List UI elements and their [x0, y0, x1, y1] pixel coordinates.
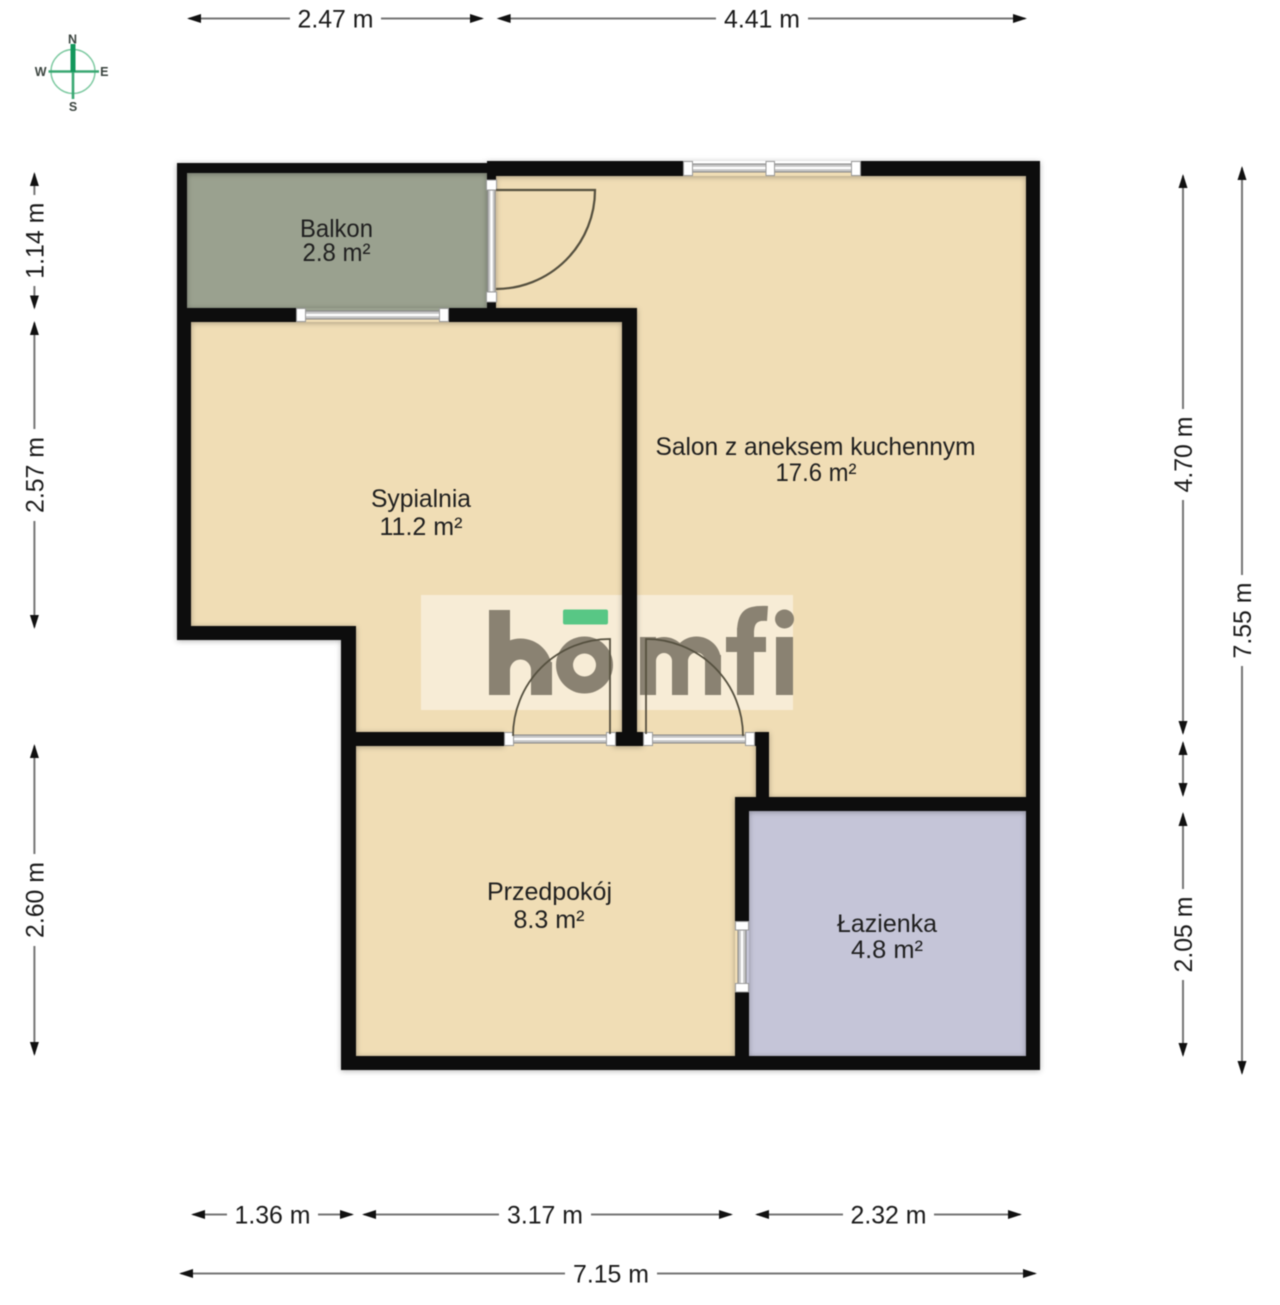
svg-text:3.17 m: 3.17 m — [507, 1202, 583, 1230]
svg-text:1.14 m: 1.14 m — [21, 203, 49, 279]
svg-text:7.55 m: 7.55 m — [1229, 583, 1257, 659]
svg-text:2.57 m: 2.57 m — [21, 437, 49, 513]
svg-text:2.47 m: 2.47 m — [298, 6, 374, 34]
svg-text:2.32 m: 2.32 m — [851, 1202, 927, 1230]
svg-text:1.36 m: 1.36 m — [235, 1202, 311, 1230]
svg-text:7.15 m: 7.15 m — [573, 1261, 649, 1289]
svg-text:8.3 m²: 8.3 m² — [514, 906, 585, 934]
svg-text:4.8 m²: 4.8 m² — [851, 936, 923, 964]
svg-text:4.70 m: 4.70 m — [1170, 417, 1198, 493]
svg-text:Łazienka: Łazienka — [837, 910, 937, 938]
svg-text:Salon z aneksem kuchennym: Salon z aneksem kuchennym — [656, 433, 976, 461]
svg-text:2.8 m²: 2.8 m² — [303, 239, 371, 267]
svg-text:2.05 m: 2.05 m — [1170, 897, 1198, 973]
svg-text:N: N — [68, 33, 77, 47]
svg-text:17.6 m²: 17.6 m² — [776, 459, 857, 487]
svg-text:S: S — [69, 100, 77, 114]
svg-text:W: W — [35, 65, 47, 79]
svg-text:11.2 m²: 11.2 m² — [380, 513, 463, 541]
svg-text:Sypialnia: Sypialnia — [371, 485, 471, 513]
svg-text:E: E — [100, 65, 108, 79]
svg-text:4.41 m: 4.41 m — [724, 6, 800, 34]
svg-text:2.60 m: 2.60 m — [21, 862, 49, 938]
svg-text:Przedpokój: Przedpokój — [487, 878, 612, 906]
